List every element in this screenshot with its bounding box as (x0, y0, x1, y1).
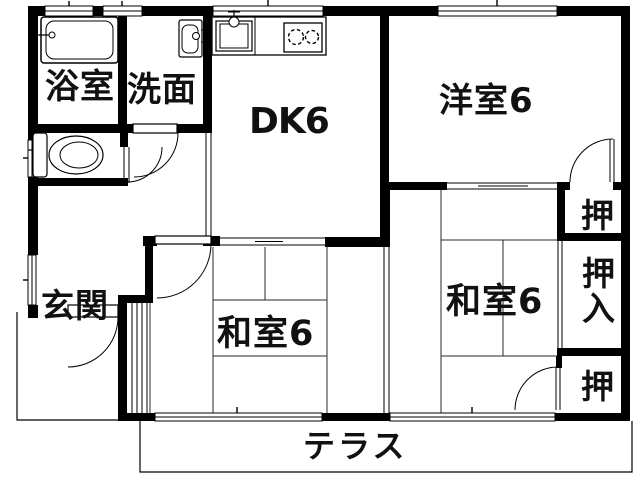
room-label-entrance: 玄関 (41, 289, 109, 322)
room-label-bathroom: 浴室 (45, 70, 115, 104)
room-label-closet-lower: 押 (581, 370, 615, 403)
japanese-room-door-arc (157, 244, 211, 298)
toilet-door-arc (127, 147, 162, 182)
stove-icon (284, 23, 322, 52)
walls (28, 6, 630, 421)
room-label-closet-upper: 押 (581, 199, 615, 232)
japanese-room-door-leaf (155, 236, 211, 244)
entrance-storage (132, 303, 147, 413)
kitchen-counter-icon (212, 10, 326, 55)
closet-door-arc (515, 367, 558, 410)
washroom-door-leaf (133, 124, 177, 133)
washroom-door-arc (134, 133, 178, 177)
bathtub-icon (32, 17, 118, 63)
room-label-western-room: 洋室6 (439, 84, 534, 118)
washbasin-icon (179, 20, 205, 57)
room-label-washroom: 洗面 (127, 73, 197, 107)
room-label-closet-oshiire: 押入 (582, 257, 617, 326)
room-label-dining-kitchen: DK6 (249, 104, 329, 140)
room-label-terrace: テラス (303, 430, 407, 462)
room-label-japanese-room-right: 和室6 (446, 285, 543, 320)
floorplan: 浴室 洗面 DK6 洋室6 和室6 和室6 玄関 テラス 押 押入 押 (0, 0, 640, 480)
toilet-icon (28, 133, 103, 177)
room-label-japanese-room-left: 和室6 (217, 317, 314, 352)
western-room-door-arc (570, 139, 613, 182)
